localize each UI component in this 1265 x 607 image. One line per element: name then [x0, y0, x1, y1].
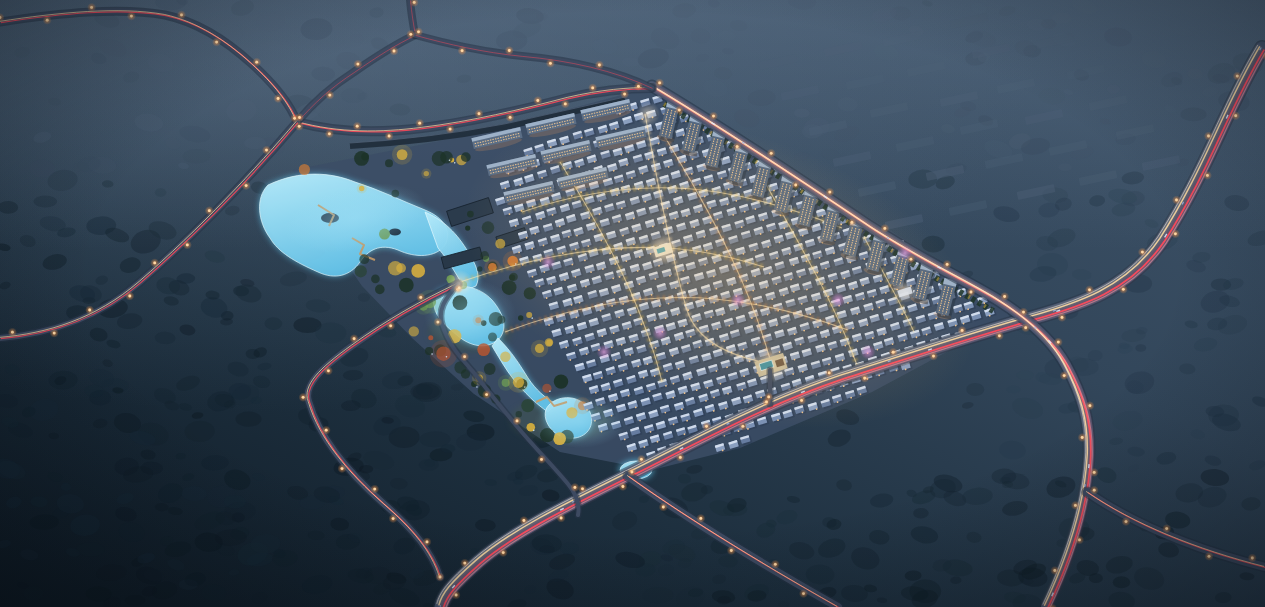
- scene-canvas: [0, 0, 1265, 607]
- vignette: [0, 0, 1265, 607]
- night-aerial-rendering: [0, 0, 1265, 607]
